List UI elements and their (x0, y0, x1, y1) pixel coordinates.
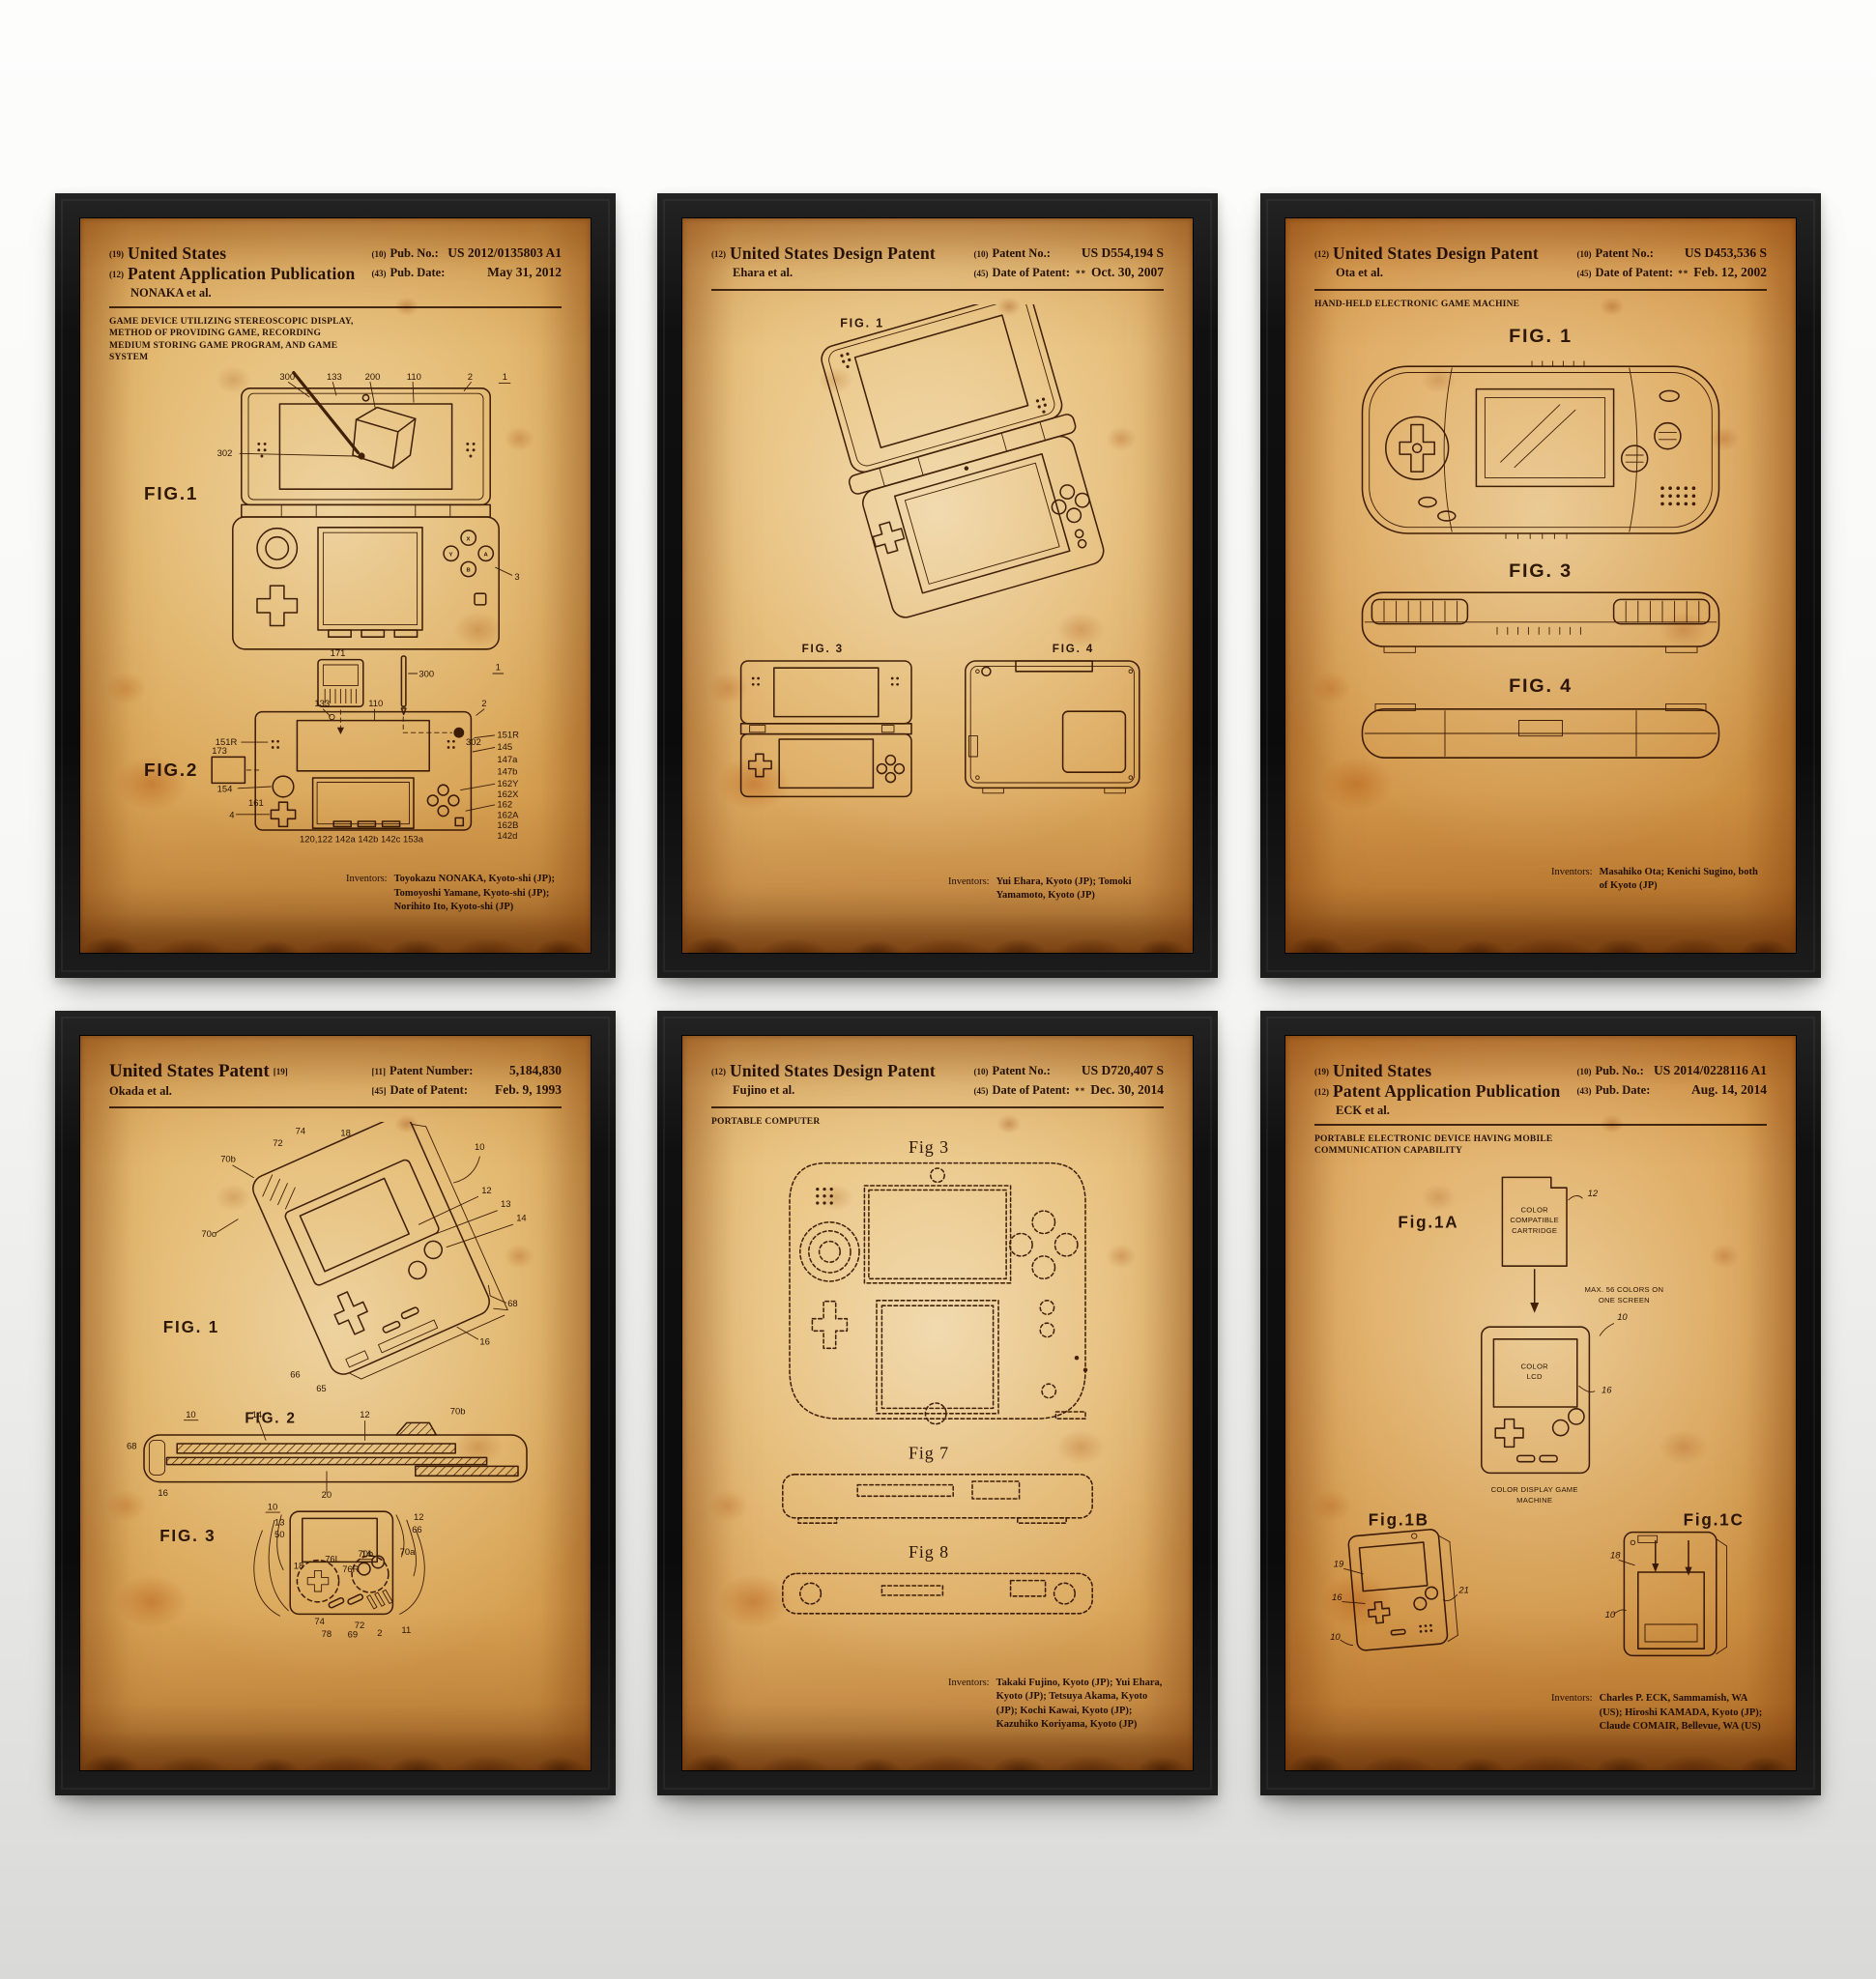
figure-area: Fig 3 (711, 1133, 1164, 1749)
svg-text:133: 133 (327, 372, 342, 383)
inventors-block: Inventors: Masahiko Ota; Kenichi Sugino,… (1551, 866, 1769, 893)
patent-frame-2ds: (12) United States Design Patent Fujino … (657, 1011, 1218, 1795)
svg-text:18: 18 (340, 1128, 351, 1138)
publication-kind: Patent Application Publication (128, 264, 355, 283)
figure-2ds-drawing: Fig 3 (711, 1133, 1164, 1749)
svg-text:14: 14 (252, 1410, 263, 1420)
svg-text:302: 302 (466, 737, 481, 748)
patent-no: US D453,536 S (1685, 244, 1767, 263)
patent-kind: United States Design Patent (730, 1061, 936, 1080)
svg-text:2: 2 (377, 1627, 382, 1638)
patent-date: Oct. 30, 2007 (1091, 263, 1164, 282)
inventors-label: Inventors: (1551, 1692, 1593, 1734)
svg-text:1: 1 (503, 372, 507, 383)
svg-text:Fig.1B: Fig.1B (1369, 1510, 1429, 1529)
svg-text:161: 161 (248, 798, 264, 809)
fig2-cross-section: 10 14 12 70b 68 16 (127, 1406, 527, 1500)
inventors-names: Charles P. ECK, Sammamish, WA (US); Hiro… (1600, 1692, 1769, 1734)
inventors-block: Inventors: Toyokazu NONAKA, Kyoto-shi (J… (346, 873, 563, 914)
svg-text:14: 14 (516, 1213, 526, 1223)
svg-text:FIG. 3: FIG. 3 (802, 643, 844, 655)
patent-no: US D554,194 S (1082, 244, 1164, 263)
country: United States (1333, 1061, 1431, 1080)
header-rule (109, 1106, 562, 1108)
svg-text:13: 13 (501, 1199, 511, 1210)
inventors-label: Inventors: (1551, 866, 1593, 893)
fig1a-game-machine: COLOR LCD 16 COLOR DISPLAY GAME MACHINE (1482, 1327, 1612, 1505)
svg-text:147b: 147b (497, 767, 517, 778)
applicant: Okada et al. (109, 1084, 367, 1099)
svg-text:10: 10 (186, 1410, 196, 1420)
svg-text:162X: 162X (497, 789, 519, 800)
svg-text:16: 16 (1332, 1592, 1342, 1602)
pub-no: US 2012/0135803 A1 (447, 244, 562, 263)
fig1-perspective-ds (812, 304, 1113, 622)
patent-header: United States Patent [19] Okada et al. [… (109, 1061, 562, 1101)
svg-text:133: 133 (314, 700, 330, 710)
svg-text:Fig 7: Fig 7 (909, 1443, 949, 1462)
svg-text:10: 10 (1330, 1632, 1341, 1643)
fig1-ref-labels: 74 72 18 10 12 13 14 70b 70o (201, 1126, 526, 1393)
svg-text:16: 16 (479, 1336, 490, 1347)
svg-text:120,122 142a 142b 142c: 120,122 142a 142b 142c 153a (300, 835, 424, 846)
cartridge-and-stylus: 171 300 302 1 (318, 648, 504, 748)
fig3-open-front-view (741, 661, 911, 796)
svg-text:FIG.1: FIG.1 (144, 484, 198, 504)
svg-text:LCD: LCD (1527, 1372, 1543, 1381)
figure-area: Fig.1A COLOR COMPATIBLE CARTRIDGE 12 MAX… (1314, 1163, 1767, 1749)
svg-text:18: 18 (294, 1561, 304, 1571)
svg-text:COLOR: COLOR (1520, 1205, 1548, 1214)
patent-no: 5,184,830 (509, 1061, 562, 1080)
svg-text:66: 66 (412, 1524, 421, 1534)
patent-kind: United States Design Patent (730, 244, 936, 263)
svg-text:65: 65 (316, 1384, 327, 1394)
country: United States (128, 244, 226, 263)
patent-date: Dec. 30, 2014 (1090, 1080, 1164, 1100)
svg-text:10: 10 (268, 1502, 278, 1512)
svg-text:FIG. 3: FIG. 3 (1509, 560, 1573, 582)
fig1c-cartridge-insert: 18 10 (1605, 1532, 1727, 1655)
svg-text:Y: Y (448, 553, 452, 559)
svg-text:10: 10 (475, 1141, 485, 1152)
svg-text:21: 21 (1458, 1585, 1469, 1595)
patent-no: US D720,407 S (1082, 1061, 1164, 1080)
svg-text:10: 10 (1605, 1609, 1616, 1620)
svg-text:70a: 70a (400, 1547, 416, 1558)
applicant: NONAKA et al. (130, 286, 367, 301)
fig1-bottom-shell: X Y A B 3 (233, 517, 520, 649)
pub-date: Aug. 14, 2014 (1691, 1080, 1767, 1100)
inventors-names: Takaki Fujino, Kyoto (JP); Yui Ehara, Ky… (996, 1677, 1166, 1732)
svg-text:162Y: 162Y (497, 779, 519, 789)
fig3-top-edge (1363, 592, 1719, 652)
svg-text:11: 11 (401, 1625, 411, 1636)
figure-area: FIG. 1 (711, 304, 1164, 932)
svg-text:70b: 70b (450, 1406, 466, 1417)
header-rule (1314, 289, 1767, 291)
svg-text:18: 18 (1610, 1550, 1621, 1561)
svg-text:69: 69 (348, 1629, 358, 1640)
svg-text:2: 2 (468, 372, 473, 383)
svg-text:2: 2 (481, 700, 486, 710)
figure-gba-drawing: FIG. 1 (1314, 316, 1767, 932)
pub-no: US 2014/0228116 A1 (1654, 1061, 1767, 1080)
svg-text:FIG. 4: FIG. 4 (1509, 675, 1573, 697)
svg-text:COLOR DISPLAY GAME: COLOR DISPLAY GAME (1491, 1485, 1578, 1494)
svg-text:171: 171 (331, 648, 346, 659)
svg-text:173: 173 (212, 746, 227, 757)
svg-text:74: 74 (314, 1617, 325, 1627)
svg-text:110: 110 (368, 700, 383, 710)
svg-text:Fig.1C: Fig.1C (1684, 1510, 1745, 1529)
svg-text:Fig 3: Fig 3 (909, 1137, 949, 1157)
svg-text:Fig.1A: Fig.1A (1398, 1213, 1458, 1231)
inventors-names: Masahiko Ota; Kenichi Sugino, both of Ky… (1600, 866, 1769, 893)
patent-paper-2ds: (12) United States Design Patent Fujino … (681, 1035, 1194, 1771)
svg-text:145: 145 (497, 743, 512, 754)
fig1a-cartridge: COLOR COMPATIBLE CARTRIDGE 12 MAX. 56 CO… (1502, 1177, 1663, 1335)
svg-text:MAX. 56 COLORS ON: MAX. 56 COLORS ON (1585, 1285, 1664, 1294)
patent-frame-3ds: (19) United States (12) Patent Applicati… (55, 193, 616, 978)
patent-paper-game-boy: United States Patent [19] Okada et al. [… (79, 1035, 592, 1771)
svg-text:142d: 142d (497, 831, 517, 842)
svg-text:4: 4 (229, 811, 234, 821)
svg-text:FIG. 3: FIG. 3 (159, 1526, 216, 1544)
svg-text:FIG.2: FIG.2 (144, 761, 198, 782)
publication-kind: Patent Application Publication (1333, 1081, 1560, 1101)
fig1-perspective-game-boy (248, 1122, 508, 1389)
inventors-names: Toyokazu NONAKA, Kyoto-shi (JP); Tomoyos… (394, 873, 563, 914)
svg-text:12: 12 (414, 1512, 424, 1523)
figure-gbc-drawing: Fig.1A COLOR COMPATIBLE CARTRIDGE 12 MAX… (1314, 1163, 1767, 1749)
fig4-back-view (966, 661, 1140, 793)
svg-text:66: 66 (290, 1369, 301, 1380)
svg-text:12: 12 (481, 1185, 491, 1195)
svg-text:X: X (466, 537, 470, 543)
patent-paper-gbc: (19) United States (12) Patent Applicati… (1284, 1035, 1797, 1771)
fig1-leader-lines (288, 383, 471, 410)
inventors-label: Inventors: (948, 875, 990, 903)
svg-text:162B: 162B (497, 821, 518, 832)
inventors-names: Yui Ehara, Kyoto (JP); Tomoki Yamamoto, … (996, 875, 1166, 903)
svg-text:16: 16 (158, 1488, 168, 1499)
applicant: Ehara et al. (733, 266, 969, 280)
svg-text:FIG. 1: FIG. 1 (163, 1317, 219, 1335)
header-rule (1314, 1124, 1767, 1126)
figure-area: FIG.1 300 133 200 110 2 1 (109, 369, 562, 932)
fig1b-game-boy-pocket (1348, 1528, 1458, 1650)
svg-text:70b: 70b (220, 1154, 236, 1164)
svg-text:CARTRIDGE: CARTRIDGE (1512, 1226, 1557, 1235)
applicant: Fujino et al. (733, 1083, 969, 1098)
svg-text:B: B (466, 568, 470, 574)
svg-text:68: 68 (507, 1298, 517, 1308)
patent-paper-gba: (12) United States Design Patent Ota et … (1284, 217, 1797, 954)
svg-text:162A: 162A (497, 811, 519, 821)
svg-text:ONE SCREEN: ONE SCREEN (1599, 1296, 1650, 1305)
svg-text:MACHINE: MACHINE (1516, 1496, 1552, 1505)
patent-header: (19) United States (12) Patent Applicati… (109, 244, 562, 301)
svg-text:12: 12 (1588, 1189, 1599, 1199)
svg-text:200: 200 (365, 372, 381, 383)
svg-text:3: 3 (514, 572, 519, 583)
figure-ds-lite-drawing: FIG. 1 (711, 304, 1164, 932)
applicant: Ota et al. (1336, 266, 1573, 280)
patent-header: (12) United States Design Patent Ota et … (1314, 244, 1767, 283)
patent-title: PORTABLE COMPUTER (711, 1116, 965, 1128)
svg-text:1: 1 (496, 663, 501, 674)
pub-date: May 31, 2012 (487, 263, 562, 282)
figure-game-boy-drawing: FIG. 1 (109, 1122, 562, 1750)
svg-text:FIG. 1: FIG. 1 (1509, 326, 1573, 347)
header-rule (711, 289, 1164, 291)
svg-text:151R: 151R (497, 731, 519, 741)
svg-text:12: 12 (360, 1410, 369, 1420)
inventors-block: Inventors: Takaki Fujino, Kyoto (JP); Yu… (948, 1677, 1166, 1732)
svg-text:76R: 76R (342, 1564, 359, 1575)
svg-text:68: 68 (127, 1441, 137, 1451)
svg-text:78: 78 (322, 1628, 332, 1639)
svg-text:16: 16 (1602, 1385, 1612, 1395)
inventors-label: Inventors: (948, 1677, 990, 1732)
figure-3ds-drawing: FIG.1 300 133 200 110 2 1 (109, 369, 562, 932)
fig1-gba-front (1363, 361, 1719, 539)
svg-text:162: 162 (497, 800, 512, 811)
patent-title: HAND-HELD ELECTRONIC GAME MACHINE (1314, 299, 1568, 310)
svg-text:COLOR: COLOR (1520, 1362, 1548, 1370)
patent-header: (12) United States Design Patent Fujino … (711, 1061, 1164, 1101)
patent-title: PORTABLE ELECTRONIC DEVICE HAVING MOBILE… (1314, 1133, 1568, 1158)
header-rule (109, 306, 562, 308)
patent-frame-gbc: (19) United States (12) Patent Applicati… (1260, 1011, 1821, 1795)
svg-text:302: 302 (217, 448, 233, 459)
svg-text:70o: 70o (201, 1228, 216, 1239)
gallery-wall: (19) United States (12) Patent Applicati… (0, 0, 1876, 1979)
svg-text:50: 50 (274, 1530, 285, 1540)
patent-header: (12) United States Design Patent Ehara e… (711, 244, 1164, 283)
patent-kind: United States Patent (109, 1061, 270, 1081)
svg-text:COMPATIBLE: COMPATIBLE (1510, 1216, 1559, 1224)
patent-frame-gba: (12) United States Design Patent Ota et … (1260, 193, 1821, 978)
svg-text:Fig 8: Fig 8 (909, 1542, 949, 1562)
svg-text:110: 110 (407, 372, 421, 383)
fig3-front-in-hands: 14 10 13 50 (254, 1502, 424, 1640)
svg-text:74: 74 (296, 1126, 306, 1136)
svg-text:154: 154 (217, 785, 233, 795)
patent-title: GAME DEVICE UTILIZING STEREOSCOPIC DISPL… (109, 316, 362, 363)
fig4-bottom-edge (1363, 703, 1719, 758)
patent-header: (19) United States (12) Patent Applicati… (1314, 1061, 1767, 1118)
inventors-block: Inventors: Charles P. ECK, Sammamish, WA… (1551, 1692, 1769, 1734)
patent-kind: United States Design Patent (1333, 244, 1539, 263)
applicant: ECK et al. (1336, 1104, 1573, 1118)
fig1-hinge (242, 505, 490, 518)
patent-paper-ds-lite: (12) United States Design Patent Ehara e… (681, 217, 1194, 954)
fig2-front-view: 133 110 2 (212, 700, 519, 846)
header-rule (711, 1106, 1164, 1108)
svg-text:70b: 70b (358, 1549, 373, 1560)
svg-text:A: A (483, 553, 488, 559)
patent-frame-ds-lite: (12) United States Design Patent Ehara e… (657, 193, 1218, 978)
inventors-block: Inventors: Yui Ehara, Kyoto (JP); Tomoki… (948, 875, 1166, 903)
svg-text:19: 19 (1334, 1559, 1344, 1569)
fig1-top-shell: 302 (217, 373, 491, 505)
patent-date: Feb. 9, 1993 (495, 1080, 562, 1100)
patent-date: Feb. 12, 2002 (1693, 263, 1767, 282)
svg-text:13: 13 (274, 1517, 285, 1528)
svg-text:10: 10 (1617, 1312, 1628, 1323)
svg-text:147a: 147a (497, 755, 518, 765)
figure-area: FIG. 1 (109, 1122, 562, 1750)
patent-frame-game-boy: United States Patent [19] Okada et al. [… (55, 1011, 616, 1795)
svg-text:FIG. 1: FIG. 1 (840, 316, 884, 330)
svg-text:300: 300 (418, 670, 434, 680)
fig7-top-edge (783, 1475, 1092, 1523)
patent-paper-3ds: (19) United States (12) Patent Applicati… (79, 217, 592, 954)
inventors-label: Inventors: (346, 873, 388, 914)
fig8-bottom-edge (783, 1573, 1092, 1613)
svg-text:76L: 76L (325, 1554, 340, 1564)
fig3-2ds-front (790, 1162, 1087, 1423)
svg-text:FIG. 4: FIG. 4 (1053, 643, 1094, 655)
svg-text:72: 72 (273, 1138, 283, 1149)
figure-area: FIG. 1 (1314, 316, 1767, 932)
